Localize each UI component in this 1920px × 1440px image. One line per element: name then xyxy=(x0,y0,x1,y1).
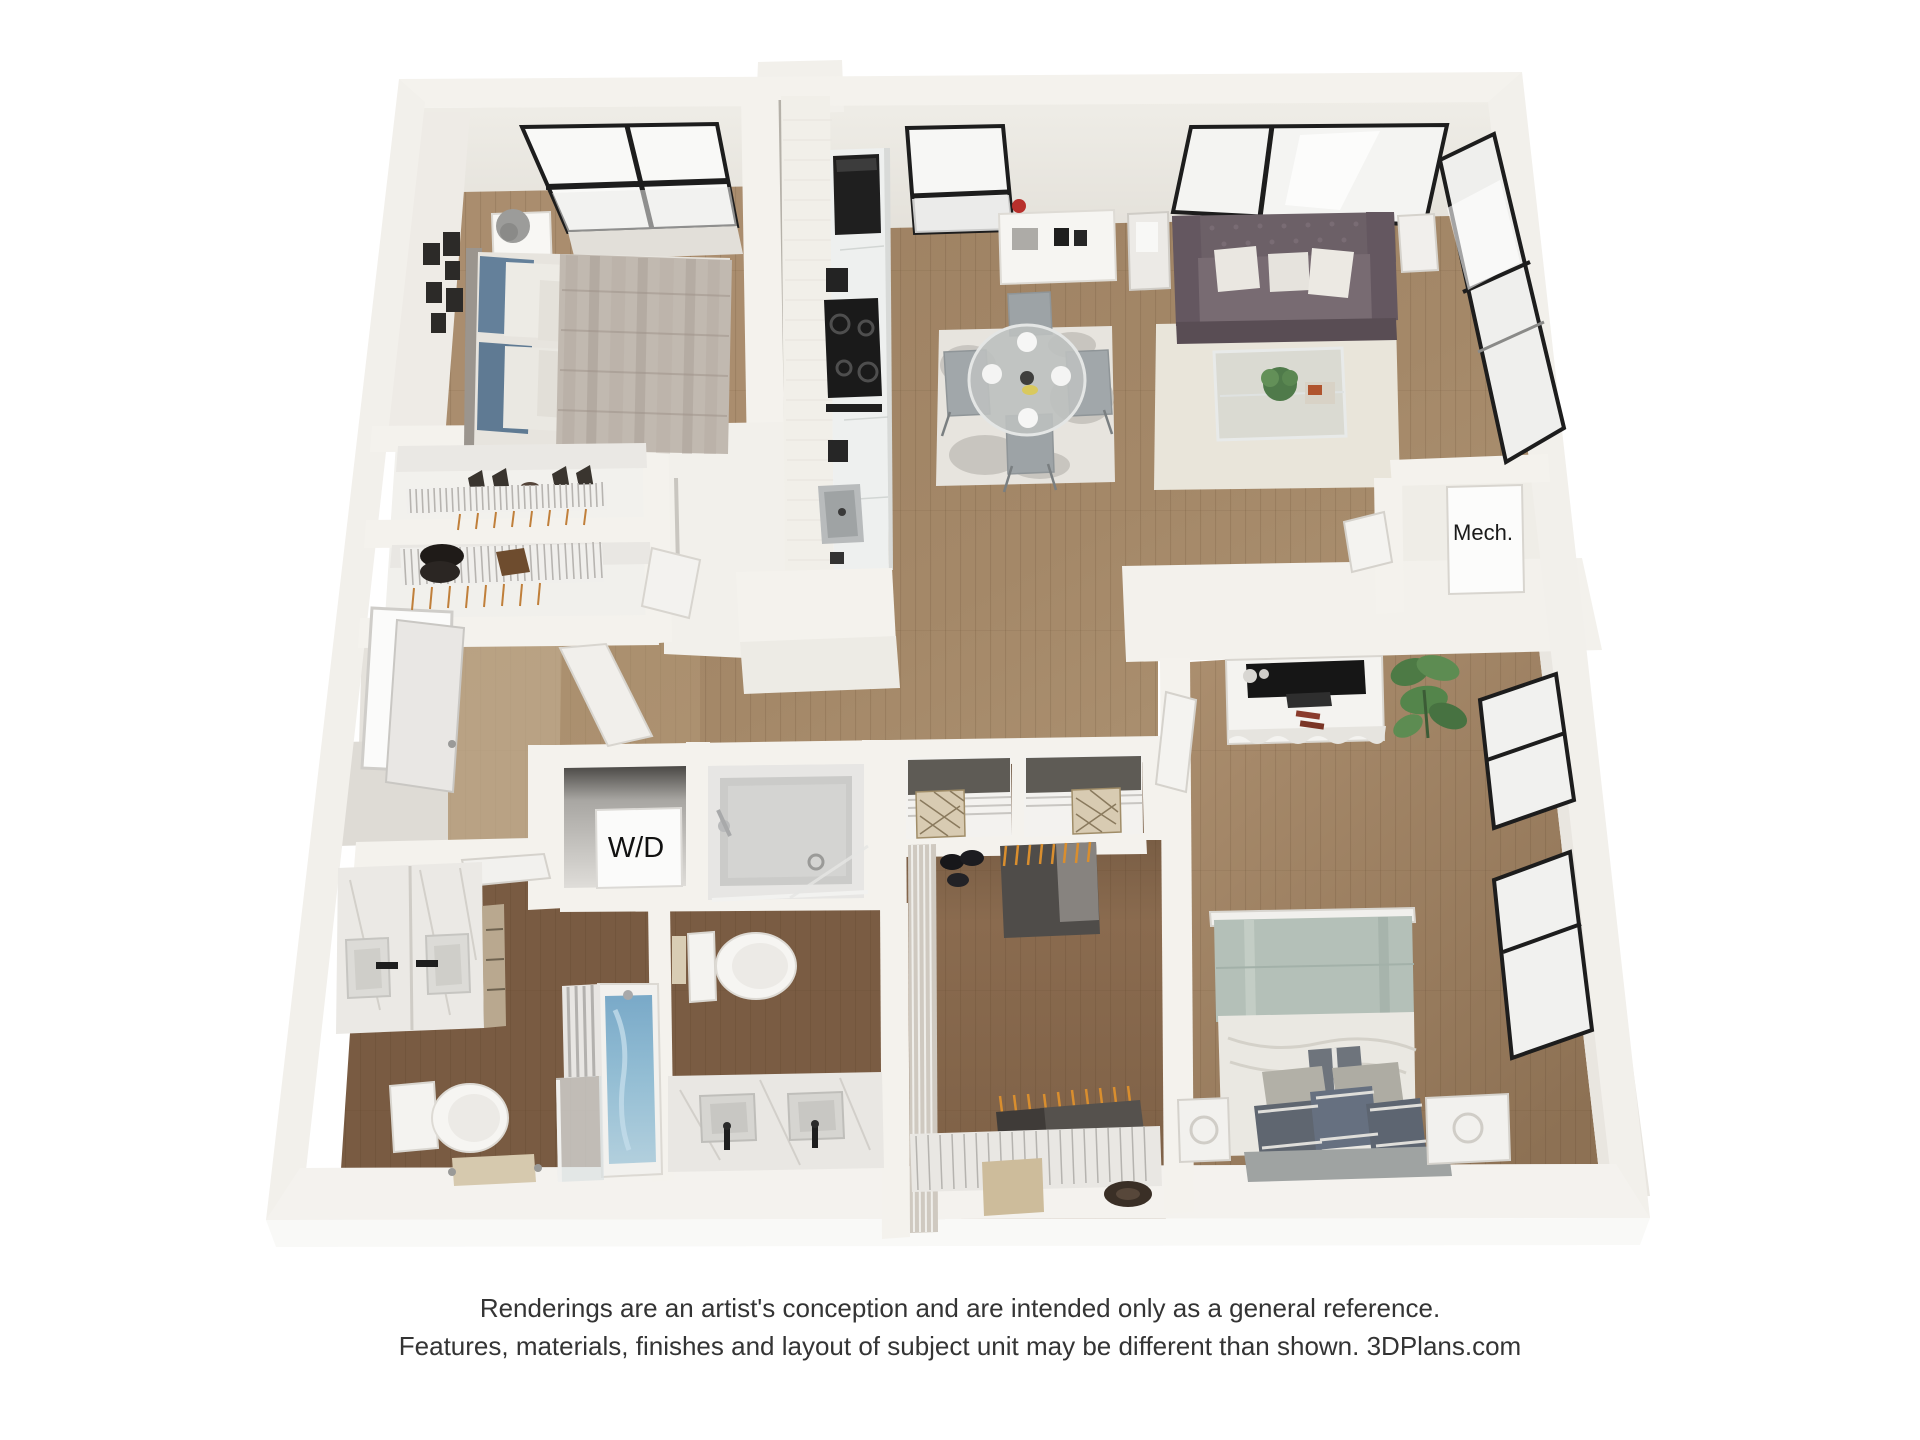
svg-text:Mech.: Mech. xyxy=(1453,520,1513,545)
svg-text:Features, materials, finishes: Features, materials, finishes and layout… xyxy=(399,1331,1521,1361)
svg-text:W/D: W/D xyxy=(608,832,664,864)
svg-text:Renderings are an artist's con: Renderings are an artist's conception an… xyxy=(480,1293,1440,1323)
